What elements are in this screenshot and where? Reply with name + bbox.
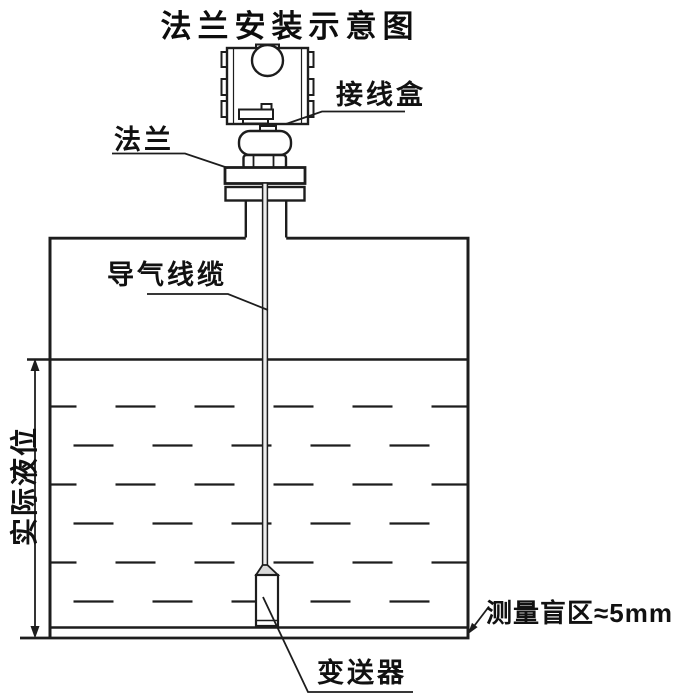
flange-installation-diagram: 法兰安装示意图 接线盒 法兰 导气线缆 实际液位 测量盲区≈5mm 变送器 (0, 0, 700, 700)
flange-label: 法兰 (114, 126, 174, 154)
actual-level-label: 实际液位 (3, 416, 33, 556)
display-dome (252, 45, 283, 76)
air-cable-label: 导气线缆 (107, 261, 227, 289)
side-port (239, 110, 273, 120)
transmitter-head-drawing (222, 45, 314, 169)
probe-taper (256, 565, 278, 575)
leader-flange (112, 154, 228, 169)
tank-drawing (20, 237, 470, 639)
air-guide-cable-line (263, 183, 268, 567)
coupling (239, 131, 291, 155)
junction-box-label: 接线盒 (336, 81, 426, 109)
diagram-title: 法兰安装示意图 (140, 1, 440, 46)
probe-body (256, 575, 278, 626)
side-port-lip (243, 119, 268, 124)
leader-air-cable (147, 294, 268, 310)
flange-plate (225, 168, 305, 184)
probe-drawing (256, 565, 278, 626)
blind-zone-label: 测量盲区≈5mm (486, 600, 673, 627)
transmitter-label: 变送器 (317, 659, 407, 687)
